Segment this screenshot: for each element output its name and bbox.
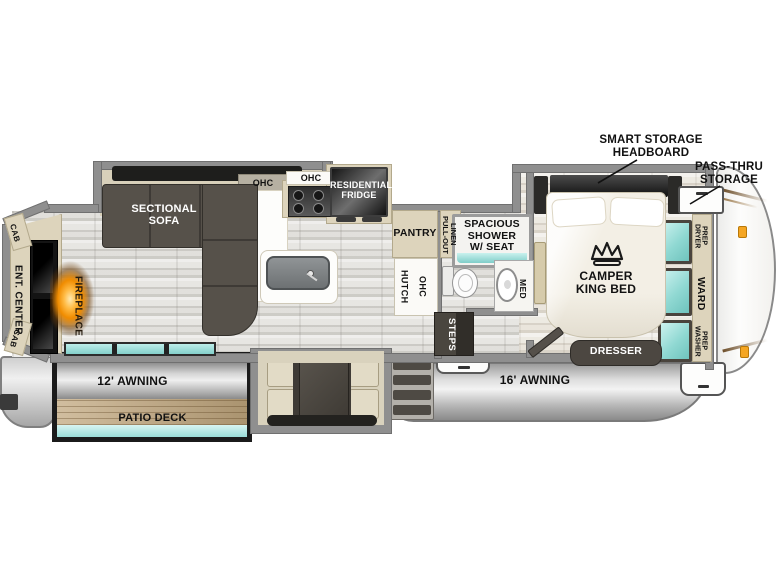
callout-lines [0, 0, 782, 586]
floorplan-diagram: 16' AWNING 12' AWNING PATIO DECK [0, 0, 782, 586]
